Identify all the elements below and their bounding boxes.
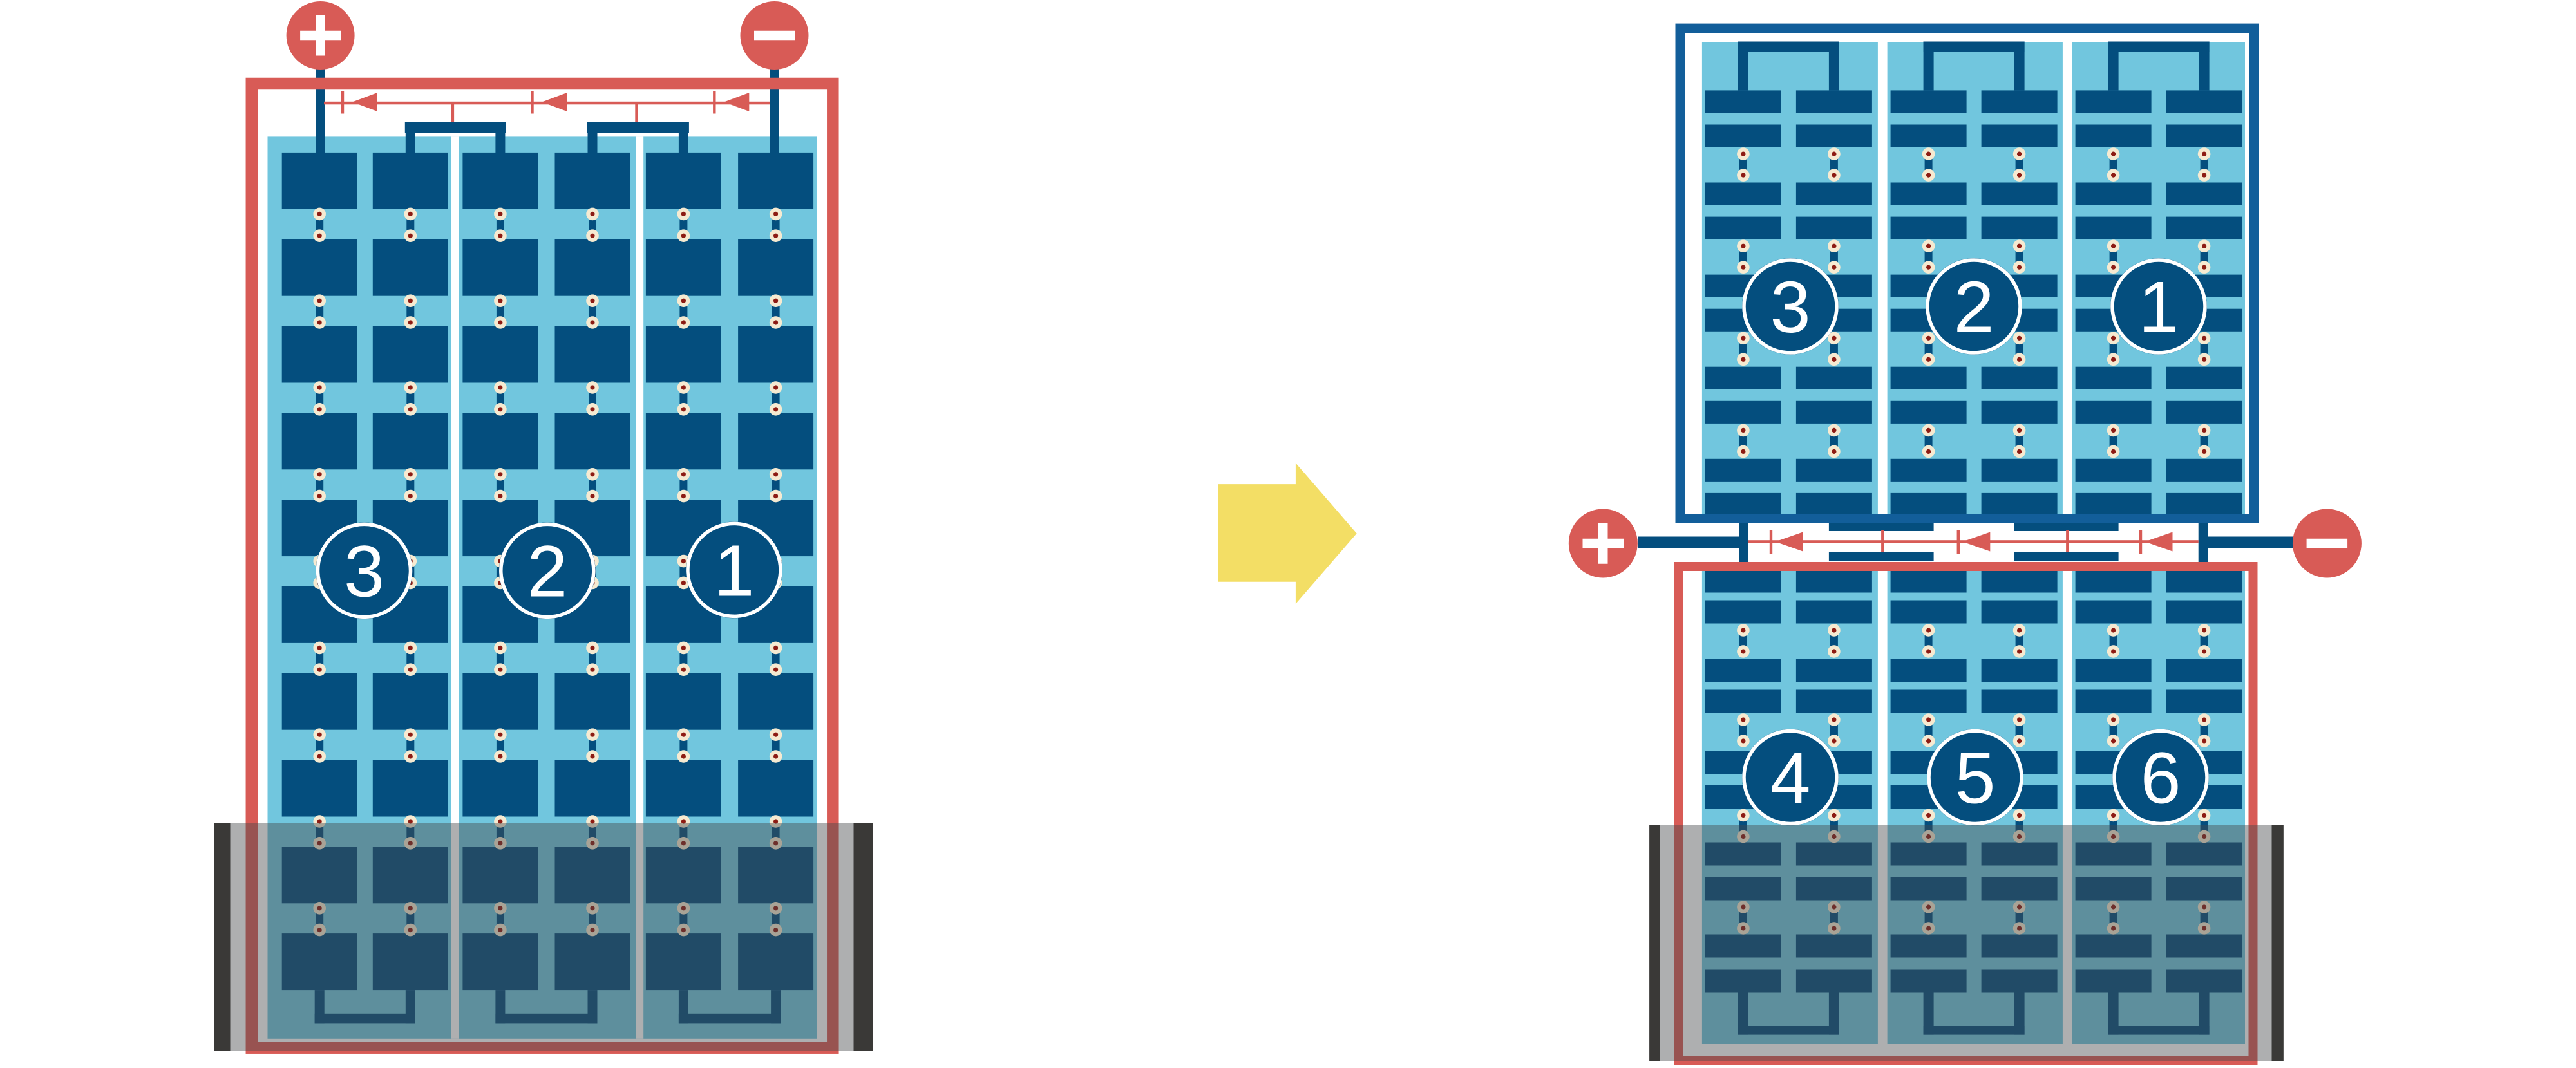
svg-text:3: 3	[1770, 267, 1811, 348]
svg-text:6: 6	[2141, 738, 2181, 819]
svg-text:2: 2	[1954, 267, 1994, 348]
svg-text:3: 3	[344, 530, 384, 612]
svg-text:5: 5	[1955, 738, 1996, 819]
svg-text:1: 1	[714, 530, 754, 611]
svg-text:2: 2	[527, 530, 567, 612]
svg-text:4: 4	[1770, 738, 1811, 819]
svg-text:1: 1	[2139, 267, 2179, 348]
